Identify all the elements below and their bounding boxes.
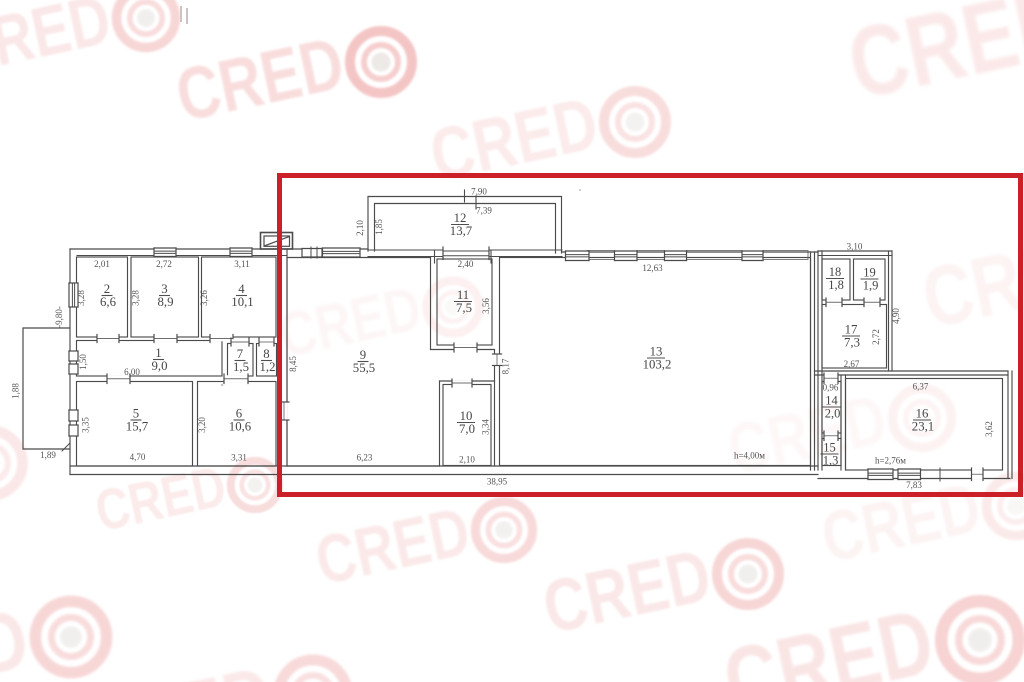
svg-text:1,5: 1,5 <box>233 360 249 374</box>
svg-text:1,9: 1,9 <box>863 278 879 292</box>
svg-text:2,72: 2,72 <box>871 329 881 345</box>
svg-text:8,9: 8,9 <box>158 295 174 309</box>
svg-text:2,10: 2,10 <box>459 455 475 465</box>
svg-text:3,26: 3,26 <box>199 290 209 306</box>
svg-text:h=4,00м: h=4,00м <box>734 451 765 461</box>
svg-text:3,31: 3,31 <box>231 453 247 463</box>
svg-text:55,5: 55,5 <box>353 361 375 375</box>
svg-text:23,1: 23,1 <box>912 419 934 433</box>
svg-text:6,37: 6,37 <box>913 382 929 392</box>
svg-text:6,23: 6,23 <box>357 453 373 463</box>
svg-text:1,88: 1,88 <box>11 383 21 399</box>
svg-text:7,39: 7,39 <box>476 206 492 216</box>
svg-text:1,85: 1,85 <box>374 219 384 235</box>
svg-text:2,0: 2,0 <box>825 406 841 420</box>
svg-text:4,70: 4,70 <box>130 452 146 462</box>
svg-text:7,3: 7,3 <box>844 335 860 349</box>
svg-text:6,00: 6,00 <box>124 367 140 377</box>
svg-text:2,67: 2,67 <box>844 359 860 369</box>
svg-text:8,45: 8,45 <box>288 356 298 372</box>
svg-text:3,28: 3,28 <box>131 290 141 306</box>
svg-text:2,10: 2,10 <box>355 220 365 236</box>
svg-text:3,34: 3,34 <box>481 419 491 435</box>
svg-text:3,11: 3,11 <box>234 259 249 269</box>
svg-text:0,96: 0,96 <box>823 383 839 393</box>
svg-text:1,89: 1,89 <box>40 450 56 460</box>
svg-text:3,62: 3,62 <box>984 421 994 437</box>
svg-text:3,20: 3,20 <box>197 417 207 433</box>
svg-text:38,95: 38,95 <box>487 477 508 487</box>
svg-text:1,2: 1,2 <box>260 360 276 374</box>
svg-text:1,3: 1,3 <box>823 453 839 467</box>
svg-text:12,63: 12,63 <box>642 263 663 273</box>
svg-text:7,90: 7,90 <box>471 187 487 197</box>
svg-text:10,6: 10,6 <box>229 419 252 433</box>
svg-text:2,01: 2,01 <box>94 259 110 269</box>
svg-text:9,0: 9,0 <box>152 359 168 373</box>
svg-text:15,7: 15,7 <box>126 419 149 433</box>
svg-text:h=2,76м: h=2,76м <box>875 456 906 466</box>
svg-text:1,50: 1,50 <box>78 354 88 370</box>
svg-text:3,28: 3,28 <box>76 290 86 306</box>
svg-text:3,56: 3,56 <box>481 298 491 314</box>
svg-text:13,7: 13,7 <box>450 224 473 238</box>
svg-text:8,17: 8,17 <box>501 358 511 374</box>
svg-text:10,1: 10,1 <box>231 295 253 309</box>
svg-text:-9,80-: -9,80- <box>54 306 64 328</box>
svg-text:2,40: 2,40 <box>458 259 474 269</box>
svg-text:103,2: 103,2 <box>643 357 672 371</box>
svg-text:7,0: 7,0 <box>459 422 475 436</box>
svg-text:7,83: 7,83 <box>906 480 922 490</box>
svg-text:2,72: 2,72 <box>156 259 172 269</box>
svg-text:4,90: 4,90 <box>891 308 901 324</box>
svg-text:7,5: 7,5 <box>456 301 472 315</box>
svg-text:3,35: 3,35 <box>81 417 91 433</box>
svg-text:1,8: 1,8 <box>828 278 844 292</box>
svg-text:3,10: 3,10 <box>847 242 863 252</box>
svg-text:6,6: 6,6 <box>100 295 117 309</box>
